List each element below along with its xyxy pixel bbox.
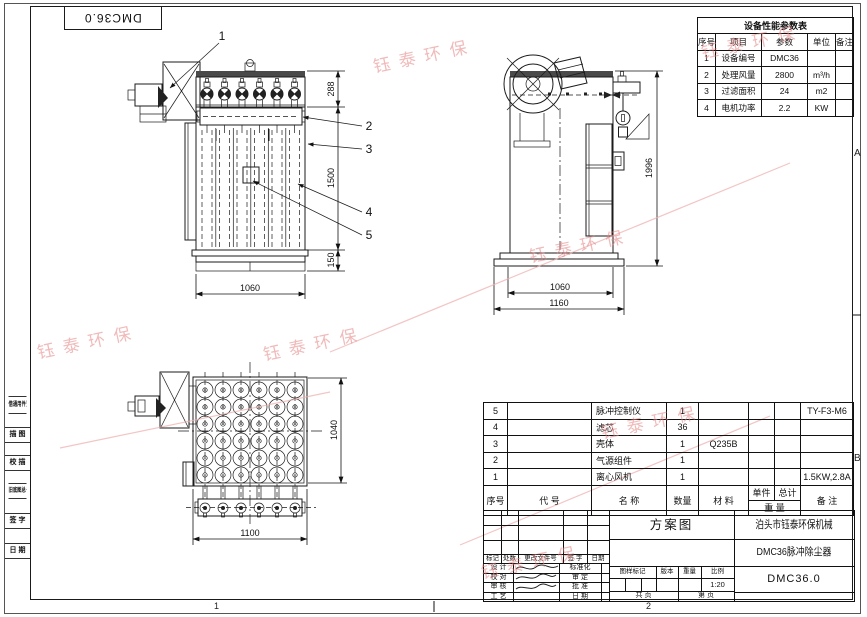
dim-side-1996: 1996 — [644, 158, 654, 178]
cell-value: 处理风量 — [716, 67, 762, 84]
cell-value: 1 — [698, 50, 716, 67]
bom-table: 5 脉冲控制仪 1 TY-F3-M6 4 滤芯 36 3 壳体 1 Q235B — [483, 402, 854, 516]
cell-value: DMC36 — [762, 50, 808, 67]
side-view: 1996 1060 1160 — [494, 55, 663, 315]
dim-front-1500: 1500 — [326, 168, 336, 188]
cell-value — [508, 436, 592, 453]
cell-value: 1 — [484, 469, 508, 486]
cell-value: 电机功率 — [716, 100, 762, 117]
drawing-number: DMC36.0 — [734, 566, 854, 592]
table-row: 2 处理风量 2800 m³/h — [698, 67, 854, 84]
cell-value: 2 — [698, 67, 716, 84]
watermark-line — [60, 392, 330, 448]
cell-value — [775, 436, 801, 453]
cell-value: m2 — [808, 83, 836, 100]
mark-header-weight: 重量 — [678, 566, 701, 578]
cell-value — [749, 452, 775, 469]
cell-value: KW — [808, 100, 836, 117]
title-block: 标记 处数 更改文件号 签 字 日期 设 计 校 对 审 核 工 艺 标准化 审… — [483, 510, 855, 602]
perf-header-row: 序号 项目 参数 单位 备注 — [698, 34, 854, 51]
cell-value — [749, 469, 775, 486]
cell-value — [801, 419, 854, 436]
cell-value: 2800 — [762, 67, 808, 84]
cell-value — [749, 403, 775, 420]
signature-scribble — [516, 574, 556, 579]
cell-value — [775, 419, 801, 436]
table-row: 3 壳体 1 Q235B — [484, 436, 854, 453]
cell-value: 气源组件 — [592, 452, 667, 469]
cell-value: 1 — [667, 452, 699, 469]
company-name: 泊头市钰泰环保机械 — [747, 511, 841, 539]
cell-value: 3 — [484, 436, 508, 453]
signature-scribble — [516, 565, 558, 569]
cell-value — [508, 403, 592, 420]
cell-value — [508, 452, 592, 469]
signature-scribble — [516, 584, 556, 589]
cell-value: 2.2 — [762, 100, 808, 117]
cell-value — [699, 403, 749, 420]
bom-header-total-weight: 总计 — [775, 485, 801, 500]
cell-value — [749, 436, 775, 453]
dim-front-1060: 1060 — [240, 283, 260, 293]
dim-side-1060: 1060 — [550, 282, 570, 292]
cell-value — [775, 403, 801, 420]
table-row: 4 滤芯 36 — [484, 419, 854, 436]
cell-value: 离心风机 — [592, 469, 667, 486]
callout-3-label: 3 — [366, 142, 373, 156]
cell-value: 过滤面积 — [716, 83, 762, 100]
cell-value: Q235B — [699, 436, 749, 453]
cell-value — [801, 452, 854, 469]
callout-2-label: 2 — [366, 119, 373, 133]
table-row: 3 过滤面积 24 m2 — [698, 83, 854, 100]
cell-value — [775, 452, 801, 469]
cell-value — [749, 419, 775, 436]
cell-value: 24 — [762, 83, 808, 100]
table-row: 1 设备编号 DMC36 — [698, 50, 854, 67]
bom-header-row: 序号 代 号 名 称 数量 材 料 单件 总计 备 注 — [484, 485, 854, 500]
cell-value — [699, 452, 749, 469]
cell-value — [836, 83, 854, 100]
cell-value — [808, 50, 836, 67]
cell-value: 脉冲控制仪 — [592, 403, 667, 420]
performance-table: 设备性能参数表 序号 项目 参数 单位 备注 1 设备编号 DMC36 2 处理… — [697, 17, 854, 117]
sheet-no-label: 第 页 — [678, 591, 734, 601]
front-view: 1 — [128, 29, 373, 299]
mark-header-drawing-mark: 图样标记 — [609, 566, 656, 578]
table-row: 5 脉冲控制仪 1 TY-F3-M6 — [484, 403, 854, 420]
cell-value: 5 — [484, 403, 508, 420]
cell-value: TY-F3-M6 — [801, 403, 854, 420]
cell-value — [508, 419, 592, 436]
cell-value: 1 — [667, 469, 699, 486]
dim-front-288: 288 — [326, 81, 336, 96]
cell-value: 2 — [484, 452, 508, 469]
cell-value: 设备编号 — [716, 50, 762, 67]
scheme-drawing-label: 方案图 — [609, 511, 734, 539]
perf-header-unit: 单位 — [808, 34, 836, 51]
mark-header-scale: 比例 — [701, 566, 734, 578]
table-row: 2 气源组件 1 — [484, 452, 854, 469]
callout-1-label: 1 — [219, 29, 226, 43]
dim-front-150: 150 — [326, 252, 336, 267]
cell-value: 4 — [484, 419, 508, 436]
cell-value — [836, 100, 854, 117]
cell-value — [801, 436, 854, 453]
dim-top-1040: 1040 — [329, 420, 339, 440]
perf-header-no: 序号 — [698, 34, 716, 51]
table-row: 4 电机功率 2.2 KW — [698, 100, 854, 117]
callout-4-label: 4 — [366, 205, 373, 219]
cell-value: 滤芯 — [592, 419, 667, 436]
drawing-sheet: DMC36.0 A B 1 2 借通用件登记 描 图 校 描 旧底图总号 签 字… — [0, 0, 867, 617]
cell-value: 1.5KW,2.8A — [801, 469, 854, 486]
perf-title-row: 设备性能参数表 — [698, 18, 854, 34]
scale-value: 1:20 — [701, 578, 734, 591]
cell-value — [699, 419, 749, 436]
callout-5-label: 5 — [366, 228, 373, 242]
mark-header-version: 版本 — [656, 566, 678, 578]
perf-header-item: 项目 — [716, 34, 762, 51]
perf-table-title: 设备性能参数表 — [698, 18, 854, 34]
cell-value — [775, 469, 801, 486]
cell-value: 1 — [667, 436, 699, 453]
product-name: DMC36脉冲除尘器 — [743, 539, 845, 566]
table-row: 1 离心风机 1 1.5KW,2.8A — [484, 469, 854, 486]
cell-value: 36 — [667, 419, 699, 436]
dim-side-1160: 1160 — [549, 298, 568, 308]
cell-value — [699, 469, 749, 486]
perf-header-remark: 备注 — [836, 34, 854, 51]
cell-value: 1 — [667, 403, 699, 420]
cell-value — [836, 67, 854, 84]
top-view: 1040 1100 — [128, 362, 347, 545]
cell-value: 4 — [698, 100, 716, 117]
cell-value: 壳体 — [592, 436, 667, 453]
cell-value: 3 — [698, 83, 716, 100]
perf-header-param: 参数 — [762, 34, 808, 51]
sheet-total-label: 共 页 — [609, 591, 678, 601]
cell-value — [508, 469, 592, 486]
dim-top-1100: 1100 — [240, 528, 259, 538]
cell-value — [836, 50, 854, 67]
bom-header-unit-weight: 单件 — [749, 485, 775, 500]
cell-value: m³/h — [808, 67, 836, 84]
